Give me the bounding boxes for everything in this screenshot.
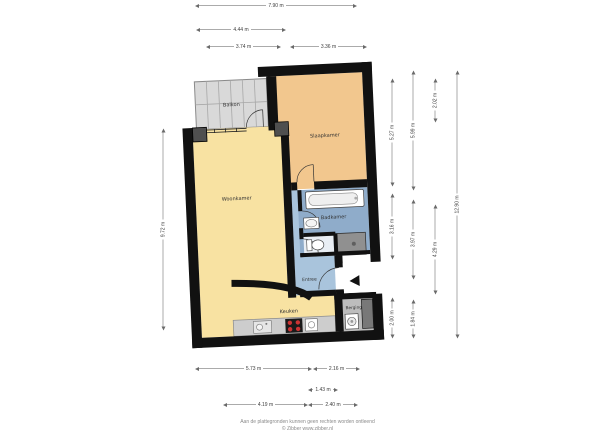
entrance-niche [343,261,386,293]
dimension-label: 9.72 m [160,220,166,239]
dimension-top-slaapkamer: 3.36 m [290,42,367,51]
dimension-bottom-entrance: 1.43 m [308,385,338,394]
oven-icon [305,319,318,332]
sink-icon [253,321,272,334]
dimension-label: 12.90 m [454,193,460,215]
dimension-right-3b: 4.29 m [431,205,440,295]
dimension-right-berging: 2.00 m [388,298,397,339]
pillar-icon [192,127,207,142]
dimension-top-total: 7.90 m [195,1,357,10]
room-label-balkon: Balkon [223,102,240,109]
disclaimer-text: Aan de plattegronden kunnen geen rechten… [0,419,615,426]
dimension-top-balkon: 3.74 m [206,42,281,51]
dimension-label: 1.84 m [410,309,416,328]
room-label-entree: Entree [302,276,317,283]
footer-disclaimer: Aan de plattegronden kunnen geen rechten… [0,419,615,433]
stove-icon [285,318,303,333]
dimension-label: 5.99 m [410,121,416,140]
dimension-label: 3.36 m [319,44,338,50]
toilet-icon [307,239,324,251]
dimension-bottom-woonkamer: 5.73 m [195,364,312,373]
dimension-label: 7.90 m [266,3,285,9]
dimension-label: 5.73 m [244,366,263,372]
floorplan-page: Balkon Slaapkamer Woonkamer Badkamer Ent… [0,0,615,436]
washbasin-icon [304,217,319,229]
dimension-label: 3.16 m [389,217,395,236]
dimension-label: 4.44 m [231,27,250,33]
dimension-label: 4.19 m [256,402,275,408]
dimension-right-2c: 1.84 m [409,300,418,339]
dimension-right-slaapkamer: 5.27 m [388,79,397,187]
dimension-label: 2.16 m [327,366,346,372]
dimension-label: 3.97 m [410,230,416,249]
dimension-right-total: 12.90 m [453,71,462,339]
copyright-text: © Zibber www.zibber.nl [0,426,615,433]
dimension-label: 2.00 m [389,308,395,327]
floor-plan: Balkon Slaapkamer Woonkamer Badkamer Ent… [180,62,388,349]
dimension-top-left: 4.44 m [196,25,286,34]
pillar-icon [274,122,289,137]
dimension-bottom-right: 2.40 m [308,400,358,409]
dimension-bottom-keuken: 4.19 m [223,400,308,409]
washing-machine-icon [345,314,359,330]
dimension-label: 2.40 m [323,402,342,408]
dimension-left-height: 9.72 m [159,129,168,331]
room-label-berging: Berging [345,304,362,310]
dimension-label: 1.43 m [313,387,332,393]
dimension-right-3: 2.02 m [431,79,440,123]
dimension-right-2: 5.99 m [409,71,418,191]
dimension-label: 5.27 m [389,123,395,142]
dimension-right-badkamer: 3.16 m [388,194,397,260]
dimension-label: 4.29 m [432,240,438,259]
dimension-label: 3.74 m [234,44,253,50]
dimension-bottom-berging: 2.16 m [313,364,360,373]
room-label-badkamer: Badkamer [321,214,348,221]
dimension-right-2b: 3.97 m [409,200,418,280]
shaft-icon [361,299,373,328]
room-label-keuken: Keuken [280,308,299,315]
dimension-label: 2.02 m [432,91,438,110]
bathtub-icon [305,189,364,209]
